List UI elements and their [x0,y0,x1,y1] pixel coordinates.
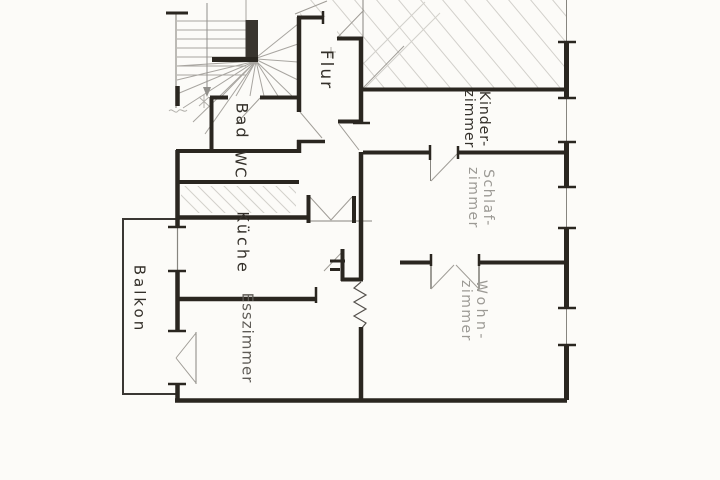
stair-newel-post [246,20,259,61]
room-label-esszimmer: Esszimmer [239,293,257,384]
room-label-wohnzimmer-line1: Wohn- [473,280,489,342]
room-label-kinderzimmer-line1: Kinder- [476,91,492,147]
break-squiggle [169,110,187,112]
floor-plan-scan: Flur Bad WC Küche Balkon Kinder- zimmer … [0,0,720,480]
room-labels-dark: Flur Bad WC Küche Balkon Kinder- zimmer [131,50,493,333]
room-label-schlafzimmer-line2: zimmer [465,167,481,229]
door-swing-flur-wc [300,112,322,138]
room-label-kinderzimmer-line2: zimmer [461,90,477,149]
wall-end-ticks [166,11,576,384]
room-label-balkon: Balkon [131,265,149,334]
room-labels-light: Schlaf- zimmer Wohn- zimmer [458,167,496,342]
room-labels-mid: Esszimmer [239,293,257,384]
room-label-kueche: Küche [234,211,253,275]
stair-walking-line [199,3,211,108]
door-swing-stairwell [295,1,404,88]
balcony-outline [122,218,177,395]
room-label-schlafzimmer-line1: Schlaf- [480,169,496,227]
door-swing-kinderzimmer [339,124,359,150]
wall-break-zigzag [354,282,366,329]
room-label-flur: Flur [316,50,336,90]
room-label-wohnzimmer-line2: zimmer [458,280,474,342]
doorway-stub-walls [309,195,355,223]
door-swing-kueche [310,197,352,220]
room-label-bad: Bad [233,103,252,140]
floor-plan-drawing: Flur Bad WC Küche Balkon Kinder- zimmer … [0,0,720,480]
door-swing-schlafzimmer [431,154,457,181]
room-label-wc: WC [232,151,250,179]
door-swing-balcony [176,333,196,383]
